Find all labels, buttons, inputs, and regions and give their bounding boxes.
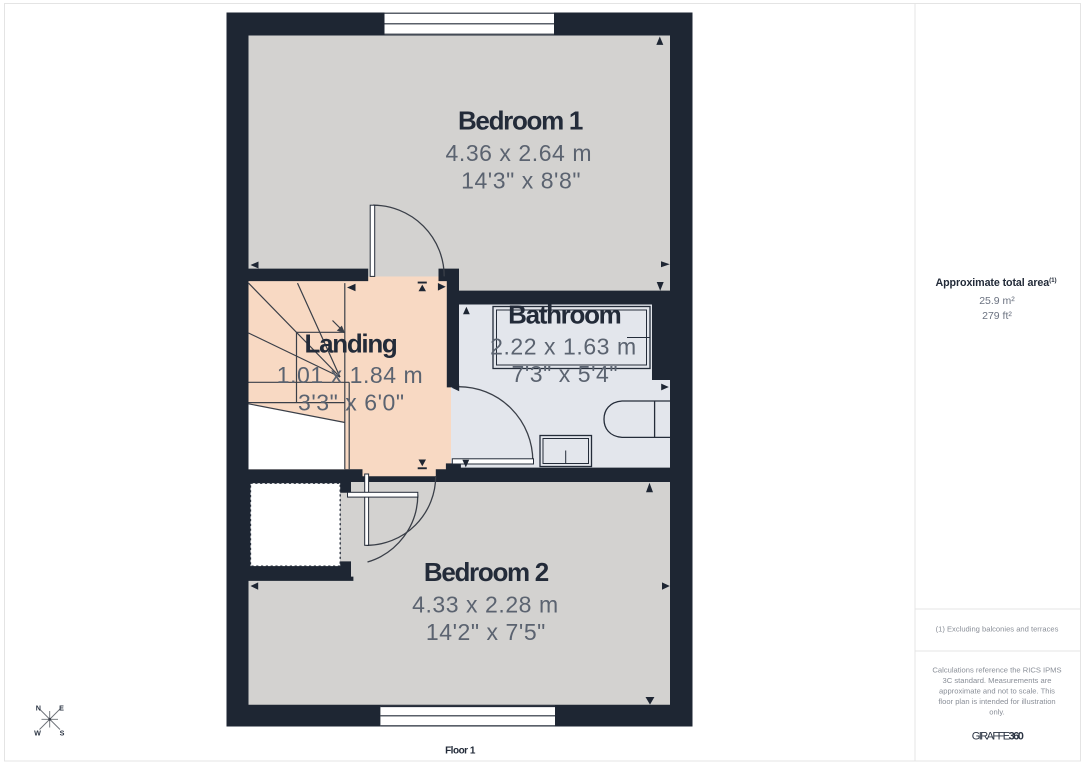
svg-text:1.01 x 1.84 m: 1.01 x 1.84 m (277, 362, 424, 388)
svg-text:3'3" x 6'0": 3'3" x 6'0" (298, 390, 405, 416)
svg-text:S: S (60, 729, 65, 738)
svg-text:(1) Excluding balconies and te: (1) Excluding balconies and terraces (936, 625, 1059, 634)
svg-text:14'2" x 7'5": 14'2" x 7'5" (426, 619, 546, 645)
svg-text:N: N (36, 704, 41, 713)
svg-text:Landing: Landing (305, 329, 397, 359)
svg-text:3C standard. Measurements are: 3C standard. Measurements are (943, 676, 1052, 685)
svg-text:Calculations reference the RIC: Calculations reference the RICS IPMS (932, 666, 1061, 675)
svg-text:Bedroom 2: Bedroom 2 (424, 557, 549, 587)
svg-text:7'3" x 5'4": 7'3" x 5'4" (511, 361, 618, 387)
svg-text:Bedroom 1: Bedroom 1 (458, 106, 583, 136)
svg-text:GIRAFFE360: GIRAFFE360 (972, 731, 1024, 743)
svg-text:2.22 x 1.63 m: 2.22 x 1.63 m (490, 334, 637, 360)
svg-text:Bathroom: Bathroom (508, 300, 621, 330)
svg-text:14'3" x 8'8": 14'3" x 8'8" (461, 167, 581, 193)
svg-text:E: E (59, 704, 64, 713)
svg-text:approximate and not to scale.: approximate and not to scale. This (939, 687, 1055, 696)
svg-text:4.36 x 2.64 m: 4.36 x 2.64 m (446, 140, 593, 166)
svg-text:279 ft²: 279 ft² (982, 310, 1012, 322)
svg-text:only.: only. (989, 708, 1004, 717)
svg-text:Floor 1: Floor 1 (445, 746, 476, 757)
svg-text:4.33 x 2.28 m: 4.33 x 2.28 m (412, 591, 559, 617)
svg-text:floor plan is intended for ill: floor plan is intended for illustration (938, 697, 1055, 706)
svg-text:W: W (34, 729, 41, 738)
svg-text:25.9 m²: 25.9 m² (979, 295, 1015, 307)
svg-text:Approximate total area(1): Approximate total area(1) (935, 277, 1056, 289)
